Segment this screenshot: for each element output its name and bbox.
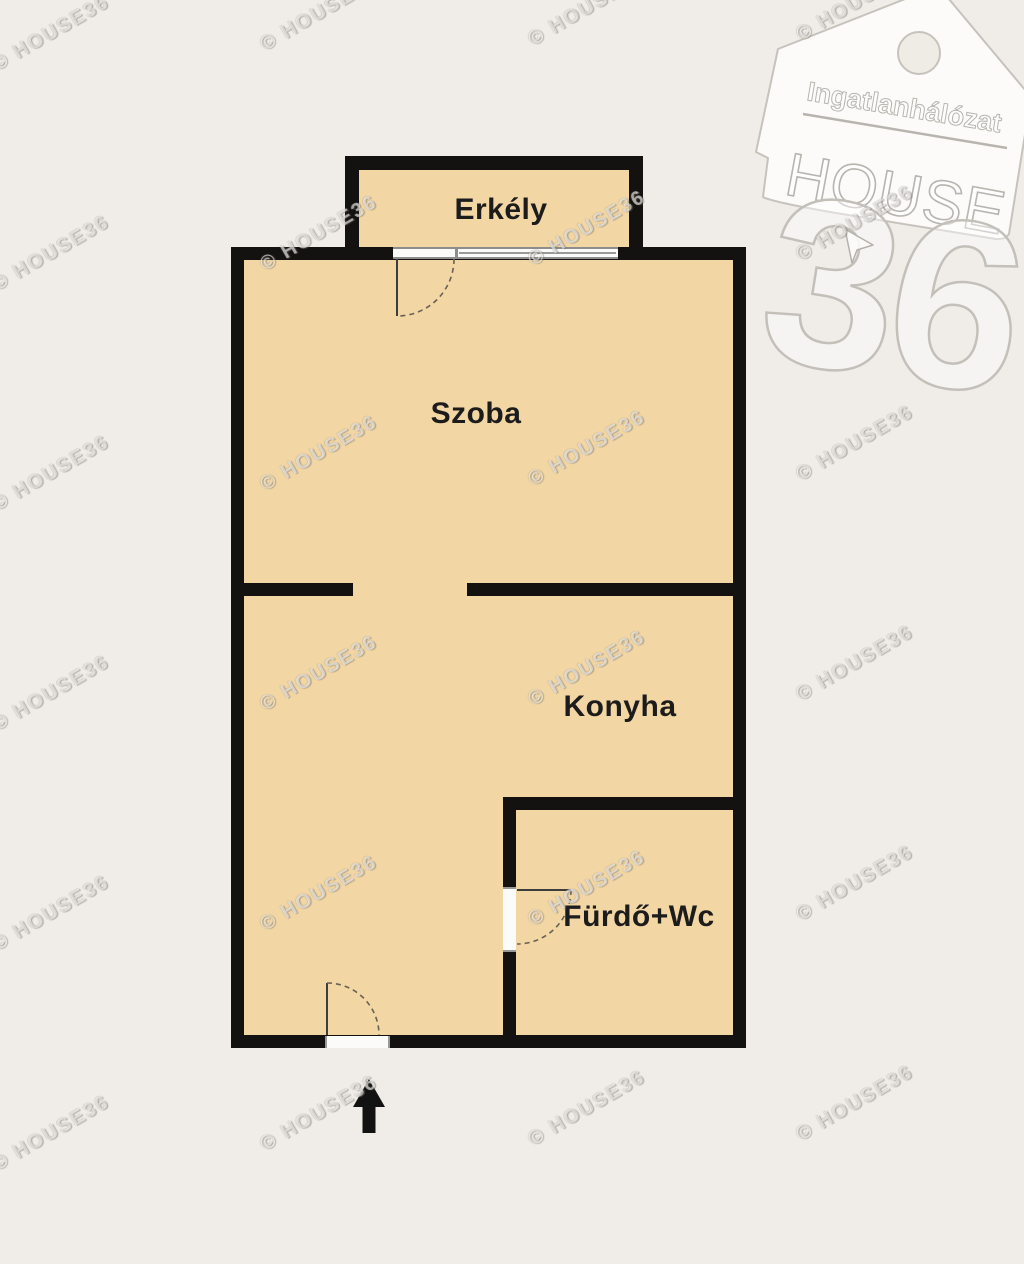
watermark-text: © HOUSE36 xyxy=(792,0,918,46)
room-label-konyha: Konyha xyxy=(563,690,676,724)
interior-wall-right xyxy=(467,583,733,596)
entrance-door-opening xyxy=(325,1036,390,1048)
watermark-text: © HOUSE36 xyxy=(792,1061,918,1147)
logo-brand-top: Ingatlanhálózat xyxy=(805,76,1004,138)
entrance-arrow-icon xyxy=(353,1079,385,1133)
watermark-text: © HOUSE36 xyxy=(0,431,114,517)
watermark-text: © HOUSE36 xyxy=(0,1091,114,1177)
logo-brand-main: HOUSE xyxy=(781,140,1012,247)
floor-plan-canvas: Erkély Szoba Konyha Fürdő+Wc Ingatlanhál… xyxy=(0,0,1024,1264)
watermark-text: © HOUSE36 xyxy=(524,1066,650,1152)
watermark-text: © HOUSE36 xyxy=(0,211,114,297)
house-tag-icon xyxy=(756,0,1024,239)
watermark-text: © HOUSE36 xyxy=(0,651,114,737)
bathroom-wall-left-lower xyxy=(503,952,516,1035)
room-label-szoba: Szoba xyxy=(431,397,522,431)
watermark-text: © HOUSE36 xyxy=(0,871,114,957)
interior-wall-left xyxy=(244,583,353,596)
watermark-text: © HOUSE36 xyxy=(792,841,918,927)
window-center-line xyxy=(459,252,616,254)
watermark-text: © HOUSE36 xyxy=(792,621,918,707)
watermark-text: © HOUSE36 xyxy=(524,0,650,51)
mouse-cursor-icon xyxy=(845,229,873,263)
logo-underline xyxy=(803,114,1007,148)
bathroom-door-opening xyxy=(503,887,516,952)
watermark-text: © HOUSE36 xyxy=(256,0,382,56)
watermark-text: © HOUSE36 xyxy=(792,401,918,487)
logo-brand-number: 36 xyxy=(746,142,1024,446)
room-label-furdo: Fürdő+Wc xyxy=(563,900,715,934)
room-label-erkely: Erkély xyxy=(454,193,547,227)
window-divider xyxy=(455,247,458,259)
watermark-text: © HOUSE36 xyxy=(0,0,114,76)
bathroom-wall-top xyxy=(503,797,733,810)
watermark-text: © HOUSE36 xyxy=(792,181,918,267)
bathroom-wall-left-upper xyxy=(503,810,516,887)
watermark-text: © HOUSE36 xyxy=(256,1071,382,1157)
